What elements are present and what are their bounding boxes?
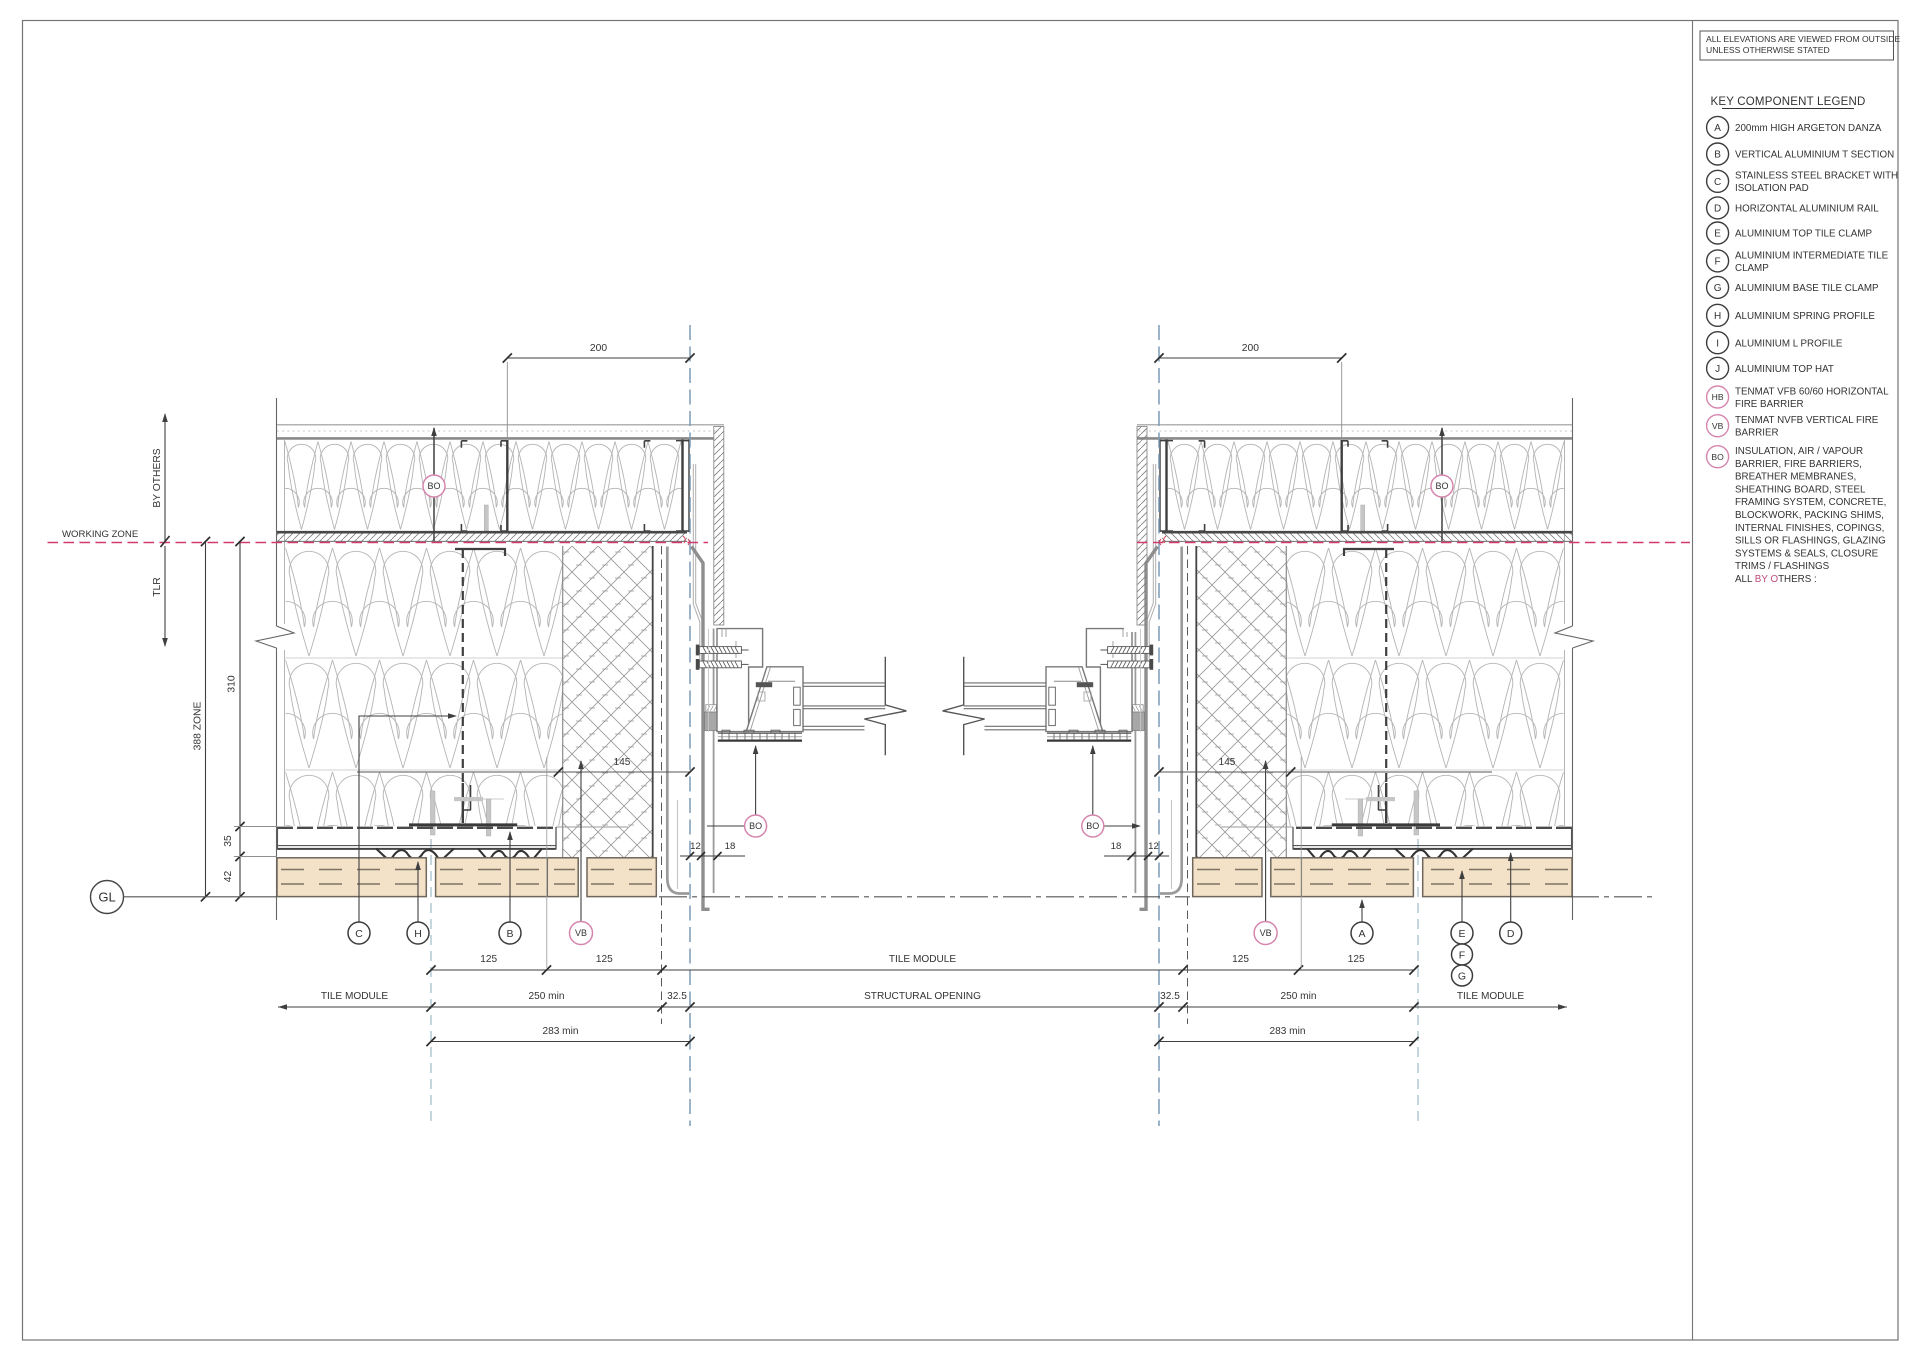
svg-text:125: 125 — [596, 954, 613, 965]
svg-text:ALUMINIUM L PROFILE: ALUMINIUM L PROFILE — [1735, 338, 1843, 349]
svg-text:TILE MODULE: TILE MODULE — [889, 954, 957, 965]
svg-text:BLOCKWORK, PACKING SHIMS,: BLOCKWORK, PACKING SHIMS, — [1735, 510, 1884, 521]
svg-text:145: 145 — [614, 757, 631, 768]
svg-text:VB: VB — [575, 928, 587, 938]
svg-text:J: J — [1715, 364, 1720, 375]
svg-text:G: G — [1714, 283, 1722, 294]
svg-text:STAINLESS STEEL BRACKET WITH: STAINLESS STEEL BRACKET WITH — [1735, 171, 1898, 182]
svg-text:200: 200 — [1242, 343, 1259, 354]
svg-text:HB: HB — [1712, 392, 1724, 402]
svg-text:INTERNAL FINISHES, COPINGS,: INTERNAL FINISHES, COPINGS, — [1735, 523, 1884, 534]
svg-text:200: 200 — [590, 343, 607, 354]
svg-text:A: A — [1714, 123, 1721, 134]
svg-text:BO: BO — [1711, 452, 1724, 462]
svg-text:125: 125 — [480, 954, 497, 965]
svg-text:TILE MODULE: TILE MODULE — [1457, 991, 1525, 1002]
svg-text:FIRE BARRIER: FIRE BARRIER — [1735, 399, 1804, 410]
svg-text:STRUCTURAL OPENING: STRUCTURAL OPENING — [864, 991, 981, 1002]
svg-text:G: G — [1458, 970, 1466, 982]
svg-text:D: D — [1714, 204, 1721, 215]
svg-text:ISOLATION PAD: ISOLATION PAD — [1735, 183, 1809, 194]
svg-text:18: 18 — [725, 841, 736, 852]
svg-text:SHEATHING BOARD, STEEL: SHEATHING BOARD, STEEL — [1735, 484, 1866, 495]
svg-text:H: H — [1714, 311, 1721, 322]
svg-text:E: E — [1714, 229, 1721, 240]
svg-text:UNLESS OTHERWISE STATED: UNLESS OTHERWISE STATED — [1706, 45, 1830, 55]
svg-text:VB: VB — [1260, 928, 1272, 938]
svg-text:BREATHER MEMBRANES,: BREATHER MEMBRANES, — [1735, 472, 1856, 483]
svg-text:125: 125 — [1348, 954, 1365, 965]
svg-text:A: A — [1358, 928, 1365, 940]
svg-text:125: 125 — [1232, 954, 1249, 965]
svg-text:ALL BY OTHERS :: ALL BY OTHERS : — [1735, 574, 1817, 585]
svg-text:BARRIER, FIRE BARRIERS,: BARRIER, FIRE BARRIERS, — [1735, 459, 1862, 470]
svg-text:ALL ELEVATIONS ARE VIEWED FROM: ALL ELEVATIONS ARE VIEWED FROM OUTSIDE — [1706, 34, 1900, 44]
svg-text:CLAMP: CLAMP — [1735, 263, 1769, 274]
svg-text:F: F — [1715, 257, 1721, 268]
svg-text:35: 35 — [223, 835, 234, 847]
svg-text:ALUMINIUM BASE TILE CLAMP: ALUMINIUM BASE TILE CLAMP — [1735, 283, 1879, 294]
svg-text:TLR: TLR — [152, 577, 163, 596]
svg-text:GL: GL — [98, 890, 115, 905]
svg-text:32.5: 32.5 — [667, 991, 687, 1002]
svg-text:HORIZONTAL ALUMINIUM RAIL: HORIZONTAL ALUMINIUM RAIL — [1735, 204, 1879, 215]
svg-text:310: 310 — [227, 675, 238, 692]
svg-text:ALUMINIUM TOP HAT: ALUMINIUM TOP HAT — [1735, 364, 1834, 375]
svg-text:VB: VB — [1712, 421, 1724, 431]
svg-text:250 min: 250 min — [529, 991, 565, 1002]
svg-text:32.5: 32.5 — [1160, 991, 1180, 1002]
svg-text:BY OTHERS: BY OTHERS — [152, 448, 163, 507]
svg-text:VERTICAL ALUMINIUM T SECTION: VERTICAL ALUMINIUM T SECTION — [1735, 150, 1894, 161]
svg-text:BO: BO — [427, 481, 440, 491]
svg-text:F: F — [1459, 949, 1465, 961]
svg-text:E: E — [1458, 928, 1465, 940]
svg-text:TENMAT NVFB VERTICAL FIRE: TENMAT NVFB VERTICAL FIRE — [1735, 415, 1879, 426]
svg-text:TILE MODULE: TILE MODULE — [321, 991, 389, 1002]
svg-text:WORKING ZONE: WORKING ZONE — [62, 529, 138, 540]
svg-text:ALUMINIUM TOP TILE CLAMP: ALUMINIUM TOP TILE CLAMP — [1735, 229, 1872, 240]
svg-text:INSULATION, AIR / VAPOUR: INSULATION, AIR / VAPOUR — [1735, 446, 1863, 457]
svg-text:H: H — [414, 928, 422, 940]
svg-text:KEY COMPONENT LEGEND: KEY COMPONENT LEGEND — [1710, 96, 1865, 108]
svg-text:18: 18 — [1111, 841, 1122, 852]
svg-text:I: I — [1716, 338, 1719, 349]
svg-text:B: B — [506, 928, 513, 940]
svg-text:250 min: 250 min — [1281, 991, 1317, 1002]
svg-text:388 ZONE: 388 ZONE — [193, 702, 204, 751]
svg-text:283 min: 283 min — [543, 1026, 579, 1037]
svg-text:12: 12 — [690, 841, 701, 852]
svg-text:ALUMINIUM SPRING PROFILE: ALUMINIUM SPRING PROFILE — [1735, 311, 1875, 322]
svg-text:SILLS OR FLASHINGS, GLAZING: SILLS OR FLASHINGS, GLAZING — [1735, 536, 1886, 547]
svg-text:TENMAT VFB 60/60 HORIZONTAL: TENMAT VFB 60/60 HORIZONTAL — [1735, 386, 1889, 397]
svg-text:ALUMINIUM INTERMEDIATE TILE: ALUMINIUM INTERMEDIATE TILE — [1735, 250, 1889, 261]
svg-text:FRAMING SYSTEM, CONCRETE,: FRAMING SYSTEM, CONCRETE, — [1735, 497, 1886, 508]
svg-text:SYSTEMS & SEALS, CLOSURE: SYSTEMS & SEALS, CLOSURE — [1735, 548, 1879, 559]
svg-text:200mm HIGH ARGETON DANZA: 200mm HIGH ARGETON DANZA — [1735, 123, 1882, 134]
svg-text:BARRIER: BARRIER — [1735, 428, 1779, 439]
svg-text:C: C — [355, 928, 363, 940]
svg-text:BO: BO — [1086, 821, 1099, 831]
svg-text:42: 42 — [223, 871, 234, 883]
svg-text:BO: BO — [749, 821, 762, 831]
svg-text:TRIMS / FLASHINGS: TRIMS / FLASHINGS — [1735, 561, 1830, 572]
svg-text:BO: BO — [1435, 481, 1448, 491]
svg-text:12: 12 — [1148, 841, 1159, 852]
svg-text:B: B — [1714, 150, 1721, 161]
svg-text:283 min: 283 min — [1270, 1026, 1306, 1037]
svg-text:D: D — [1507, 928, 1515, 940]
svg-text:145: 145 — [1219, 757, 1236, 768]
svg-text:C: C — [1714, 177, 1721, 188]
